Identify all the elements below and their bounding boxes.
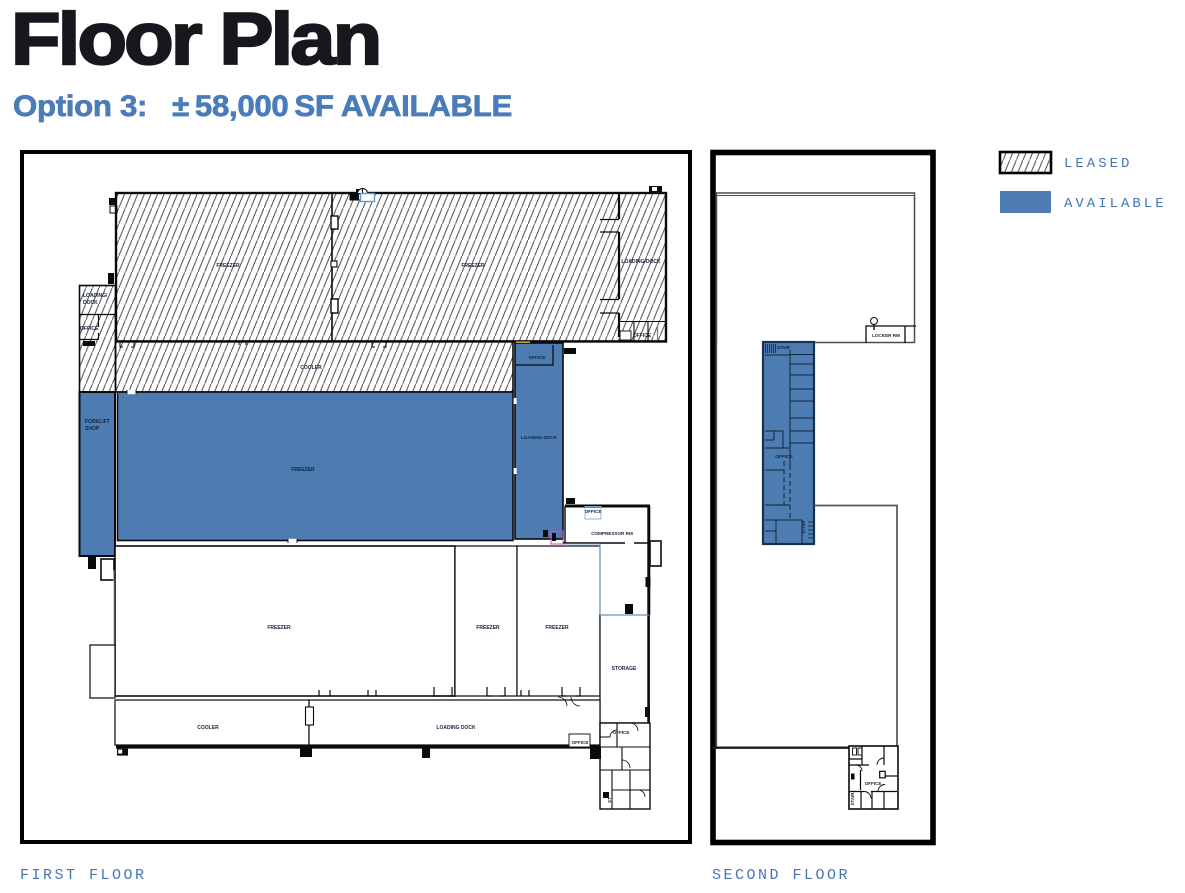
svg-text:COMPRESSOR RM: COMPRESSOR RM: [591, 531, 633, 536]
svg-text:OFFICE: OFFICE: [80, 326, 99, 332]
svg-text:FREEZER: FREEZER: [545, 625, 569, 631]
svg-text:DOCK: DOCK: [83, 300, 98, 306]
svg-text:ST: ST: [607, 797, 612, 803]
svg-text:STORAGE: STORAGE: [612, 666, 637, 672]
svg-text:OFFICE: OFFICE: [613, 730, 630, 735]
svg-text:FIRST FLOOR: FIRST FLOOR: [20, 867, 147, 884]
svg-text:COOLER: COOLER: [197, 725, 219, 731]
svg-text:SHOP: SHOP: [85, 426, 100, 432]
svg-text:OFFICE: OFFICE: [633, 333, 652, 339]
svg-text:OFFICE: OFFICE: [585, 509, 602, 514]
svg-text:LOADING/DOCK: LOADING/DOCK: [621, 259, 661, 265]
svg-text:LOCKER RM: LOCKER RM: [872, 333, 900, 338]
svg-text:OFFICE: OFFICE: [775, 454, 793, 460]
svg-text:SECOND FLOOR: SECOND FLOOR: [712, 867, 850, 884]
svg-text:FREEZER: FREEZER: [267, 625, 291, 631]
svg-text:FREEZER: FREEZER: [291, 467, 315, 473]
svg-text:COOLER: COOLER: [300, 365, 322, 371]
svg-text:FREEZER: FREEZER: [476, 625, 500, 631]
svg-text:FORKLIFT: FORKLIFT: [85, 419, 110, 425]
svg-text:LOADING DOCK: LOADING DOCK: [436, 725, 476, 731]
svg-text:OFFICE: OFFICE: [529, 355, 546, 360]
svg-text:STAIR: STAIR: [801, 520, 806, 534]
svg-text:OFFICE: OFFICE: [865, 781, 882, 786]
svg-text:FREEZER: FREEZER: [216, 263, 240, 269]
svg-text:OFFICE: OFFICE: [572, 740, 589, 745]
svg-text:STAIR: STAIR: [777, 345, 791, 350]
svg-text:AVAILABLE: AVAILABLE: [1064, 196, 1167, 212]
svg-text:STAIR: STAIR: [850, 792, 855, 806]
svg-text:LOADING/: LOADING/: [83, 293, 108, 299]
svg-text:LEASED: LEASED: [1064, 156, 1132, 172]
svg-text:LOADING DOCK: LOADING DOCK: [521, 435, 558, 440]
svg-text:FREEZER: FREEZER: [461, 263, 485, 269]
